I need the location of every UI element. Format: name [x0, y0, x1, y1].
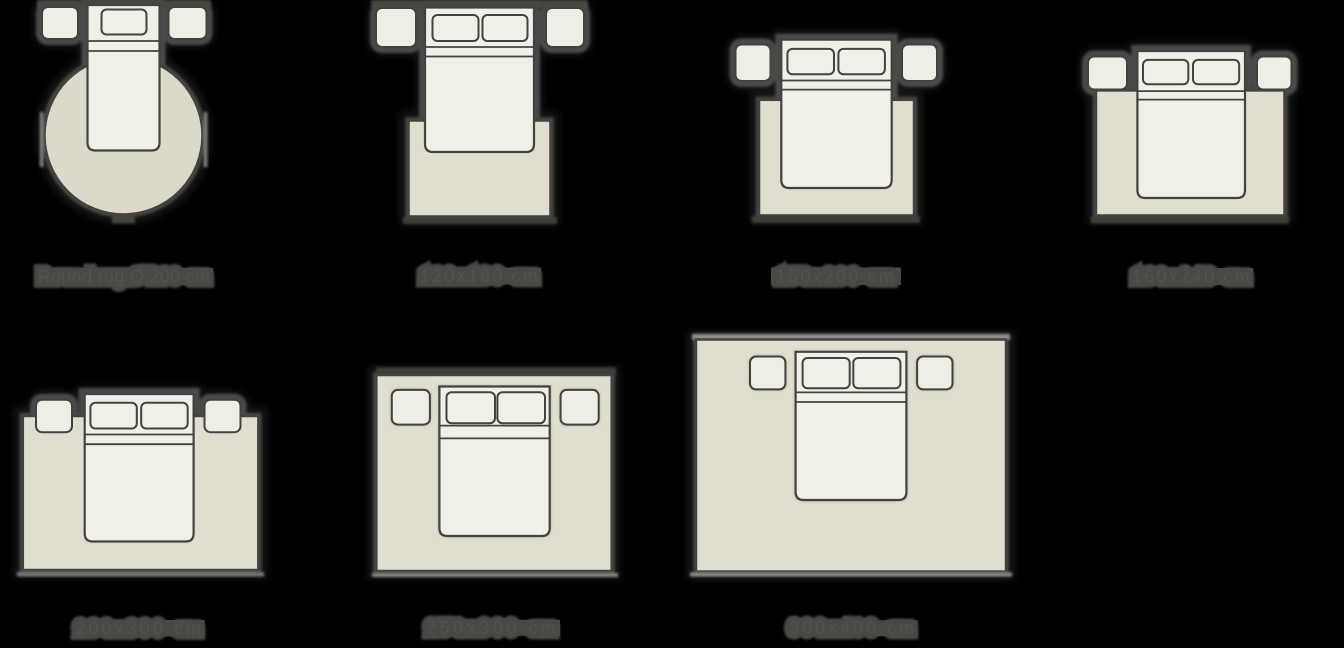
- svg-text:160x240 cm: 160x240 cm: [1132, 267, 1252, 287]
- svg-text:200x300 cm: 200x300 cm: [75, 618, 204, 638]
- svg-text:120x180 cm: 120x180 cm: [420, 266, 540, 286]
- svg-text:150x200 cm: 150x200 cm: [776, 266, 896, 286]
- svg-text:250x300 cm: 250x300 cm: [426, 618, 559, 638]
- svg-text:Round rug Ø 200 cm: Round rug Ø 200 cm: [38, 267, 211, 287]
- svg-text:300x400 cm: 300x400 cm: [789, 618, 917, 638]
